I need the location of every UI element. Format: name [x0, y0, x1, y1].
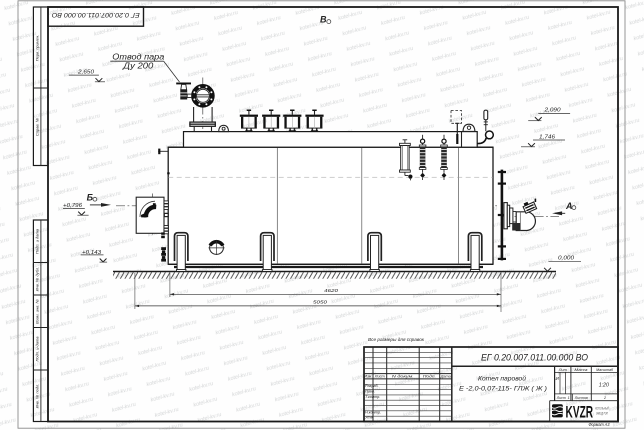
svg-text:Все размеры для справок: Все размеры для справок: [368, 337, 425, 342]
svg-text:Формат А3: Формат А3: [589, 422, 610, 427]
svg-text:Взам. инв. №: Взам. инв. №: [35, 298, 40, 323]
svg-text:Масса: Масса: [575, 368, 588, 372]
svg-text:Инв. № подл.: Инв. № подл.: [35, 384, 40, 409]
svg-text:N докум.: N докум.: [392, 375, 414, 379]
svg-text:1:20: 1:20: [599, 382, 609, 388]
svg-text:2,090: 2,090: [543, 108, 561, 114]
svg-text:Пров.: Пров.: [365, 389, 375, 393]
svg-text:Перв. примен.: Перв. примен.: [35, 35, 40, 62]
svg-text:В: В: [320, 15, 327, 25]
svg-text:Лист: Лист: [556, 396, 566, 400]
svg-text:4620: 4620: [324, 288, 338, 294]
svg-text:Дата: Дата: [440, 375, 451, 379]
svg-text:ЕГ 0.20.007.011.00.000 ВО: ЕГ 0.20.007.011.00.000 ВО: [52, 11, 140, 18]
svg-text:Утв.: Утв.: [365, 416, 374, 420]
svg-text:Листов: Листов: [574, 396, 588, 400]
svg-text:ЕГ 0.20.007.011.00.000 ВО: ЕГ 0.20.007.011.00.000 ВО: [481, 352, 589, 363]
svg-text:Т.контр.: Т.контр.: [365, 395, 380, 399]
svg-text:0,000: 0,000: [558, 255, 574, 261]
svg-text:2,650: 2,650: [77, 69, 95, 75]
svg-text:2: 2: [603, 396, 606, 400]
svg-text:Справ. №: Справ. №: [35, 117, 40, 136]
svg-text:Изм.: Изм.: [364, 375, 372, 379]
svg-text:Б: Б: [87, 192, 94, 202]
svg-text:5050: 5050: [313, 300, 327, 306]
svg-text:Лист: Лист: [374, 375, 385, 379]
svg-text:Масштаб: Масштаб: [596, 368, 614, 372]
svg-text:1,746: 1,746: [539, 134, 555, 140]
svg-text:Котел паровой: Котел паровой: [478, 376, 527, 383]
svg-text:КОТЕЛЬНЫЙ: КОТЕЛЬНЫЙ: [595, 406, 609, 410]
svg-text:Отвод пара: Отвод пара: [112, 52, 164, 61]
svg-text:1: 1: [568, 396, 570, 400]
svg-text:Лит: Лит: [558, 368, 567, 372]
svg-text:Инв. № дубл.: Инв. № дубл.: [35, 267, 40, 292]
svg-text:KVZR: KVZR: [566, 403, 594, 421]
svg-text:+0,796: +0,796: [63, 203, 82, 209]
svg-text:ЗАВОД РЭП: ЗАВОД РЭП: [596, 411, 608, 415]
svg-text:А: А: [565, 201, 573, 211]
svg-text:Ду 200: Ду 200: [122, 61, 154, 70]
svg-text:Н.контр.: Н.контр.: [365, 410, 381, 414]
svg-text:Разраб.: Разраб.: [365, 384, 379, 388]
svg-text:Подп. и дата: Подп. и дата: [35, 336, 40, 362]
svg-text:Е -2,0-0,07-115- ГЛЖ ( Ж ): Е -2,0-0,07-115- ГЛЖ ( Ж ): [459, 386, 547, 392]
svg-text:Подп. и дата: Подп. и дата: [35, 228, 40, 254]
svg-text:Подп.: Подп.: [423, 375, 436, 379]
